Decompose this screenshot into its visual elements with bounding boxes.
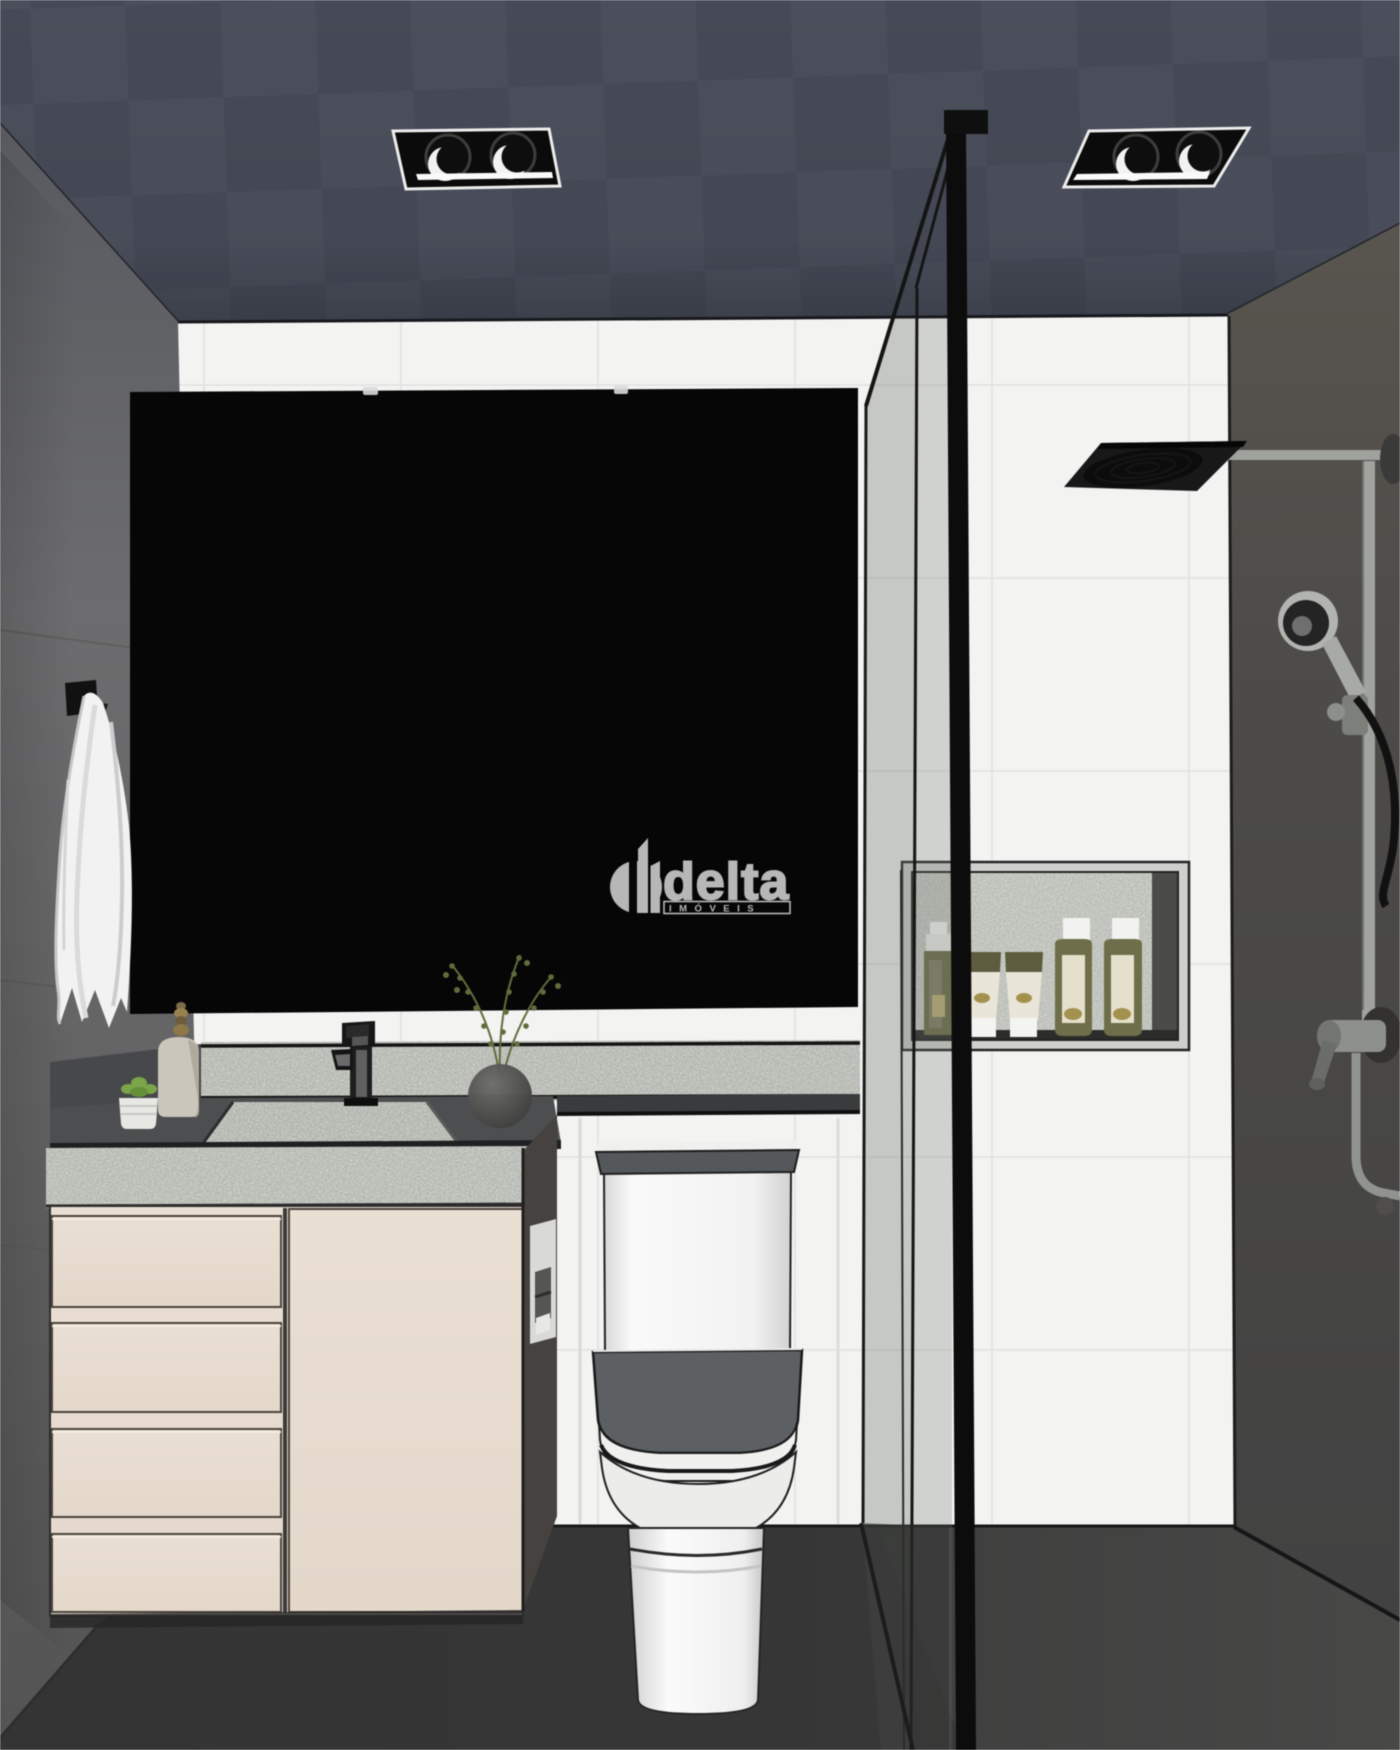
svg-text:IMÓVEIS: IMÓVEIS — [669, 903, 761, 915]
